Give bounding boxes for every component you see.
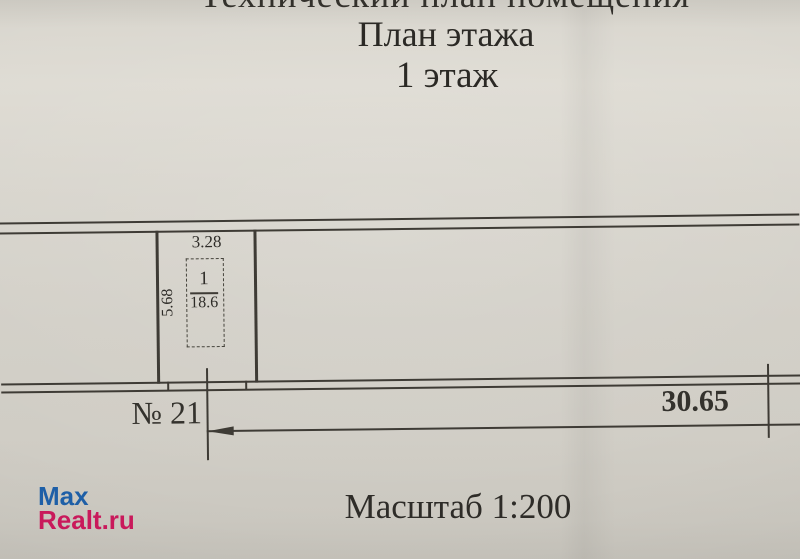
watermark-line2: Realt.ru (38, 508, 135, 532)
floor-plan-drawing: 1 18.6 3.28 5.68 № 21 30.65 (0, 0, 800, 559)
bottom-wall-tick-right (245, 381, 247, 390)
outer-wall-top-inner-line (0, 223, 799, 234)
room-number: 1 (199, 268, 209, 290)
dimension-height-label: 5.68 (159, 281, 177, 325)
dimension-line (207, 423, 800, 432)
unit-number-label: № 21 (131, 394, 202, 432)
bottom-wall-tick-left (167, 382, 169, 391)
outer-wall-top-line (0, 213, 799, 224)
dimension-width-label: 3.28 (192, 232, 222, 252)
scanned-floor-plan-page: Технический план помещения План этажа 1 … (0, 0, 800, 559)
watermark: Max Realt.ru (38, 484, 135, 532)
dimension-arrow-left-icon (208, 426, 235, 436)
scale-label: Масштаб 1:200 (345, 487, 572, 527)
total-length-label: 30.65 (661, 384, 729, 419)
room-area-value: 18.6 (190, 294, 218, 312)
room-right-wall (253, 230, 258, 383)
